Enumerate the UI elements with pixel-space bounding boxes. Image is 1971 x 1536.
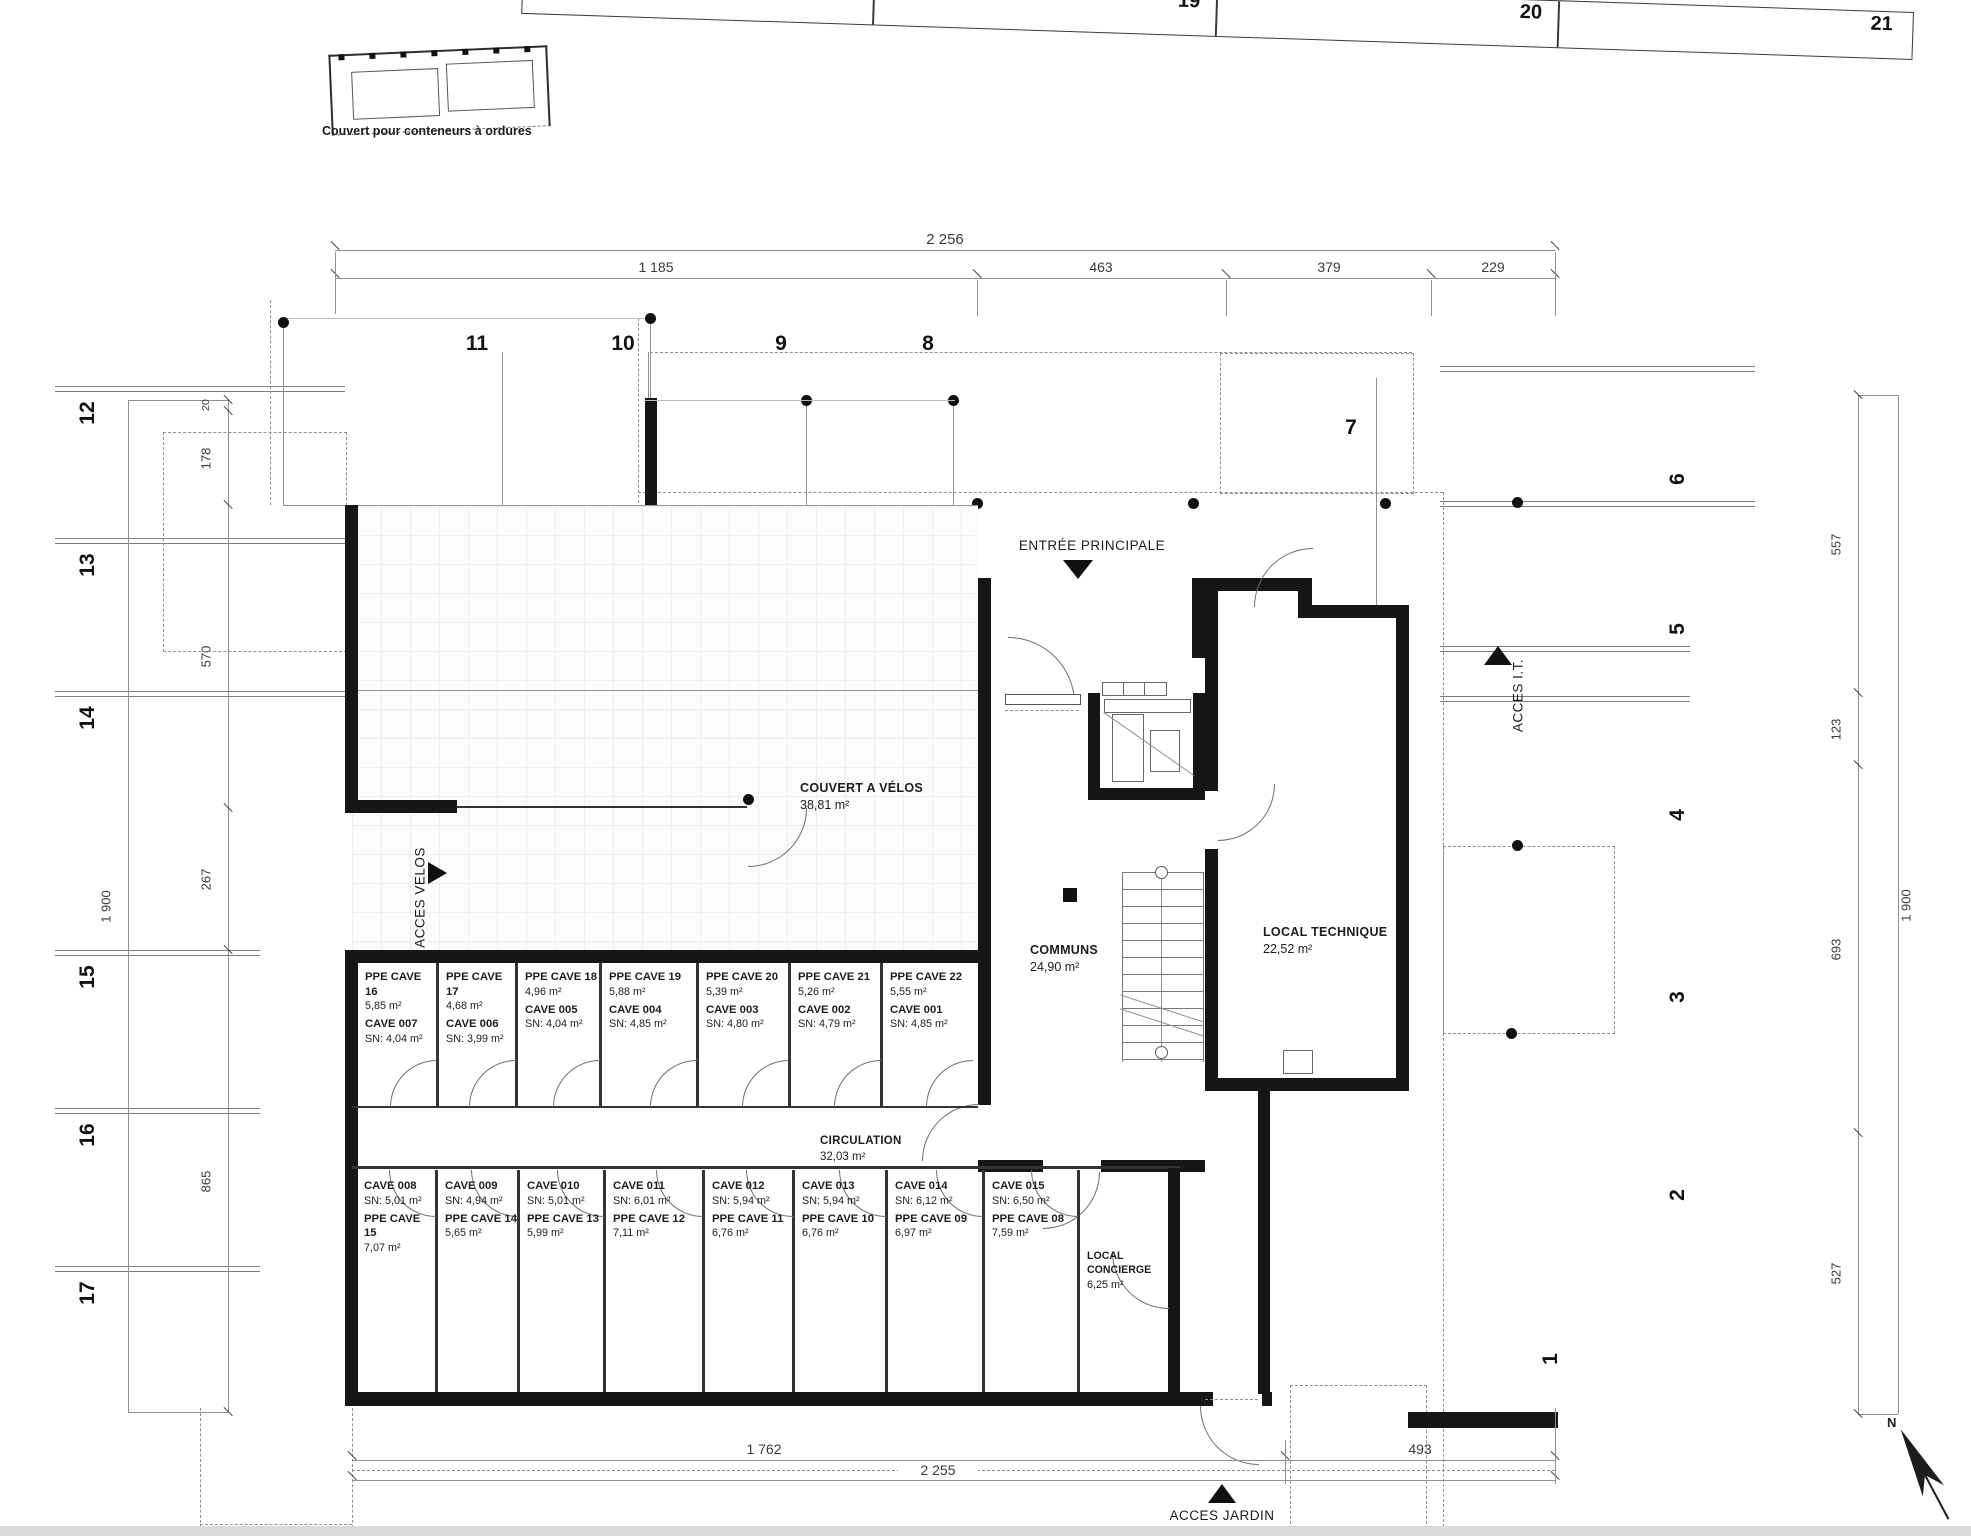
thin-post-line bbox=[283, 322, 284, 505]
cave-cell: CAVE 015 SN: 6,50 m² PPE CAVE 08 7,59 m² bbox=[985, 1172, 1077, 1390]
wall bbox=[1205, 1078, 1409, 1091]
cave-cell: PPE CAVE 16 5,85 m² CAVE 007 SN: 4,04 m² bbox=[358, 963, 436, 1106]
cave-sn: SN: 4,94 m² bbox=[445, 1194, 517, 1208]
cave-ppe-name: PPE CAVE 10 bbox=[802, 1212, 885, 1227]
cave-name: CAVE 004 bbox=[609, 1003, 696, 1018]
dim-right-total: 1 900 bbox=[1899, 881, 1914, 931]
ext-line bbox=[1285, 1440, 1286, 1484]
cave-sn: SN: 6,50 m² bbox=[992, 1194, 1077, 1208]
room-area: 22,52 m² bbox=[1263, 941, 1387, 958]
elevator-machinery bbox=[1112, 714, 1144, 782]
dim-left: 267 bbox=[199, 858, 214, 902]
cave-ppe-name: PPE CAVE 19 bbox=[609, 970, 696, 985]
column bbox=[1063, 888, 1077, 902]
cave-sn: SN: 3,99 m² bbox=[446, 1032, 515, 1046]
grid-label-7: 7 bbox=[1336, 416, 1366, 440]
cave-name: CAVE 009 bbox=[445, 1179, 517, 1194]
wall-stub bbox=[645, 398, 657, 506]
cave-ppe-area: 6,97 m² bbox=[895, 1226, 982, 1240]
elevator-sill bbox=[1102, 682, 1125, 696]
cave-sn: SN: 4,04 m² bbox=[365, 1032, 436, 1046]
entree-label: ENTRÉE PRINCIPALE bbox=[1012, 538, 1172, 553]
access-it-arrow bbox=[1484, 646, 1512, 665]
cave-sn: SN: 5,94 m² bbox=[802, 1194, 885, 1208]
trash-shelter-label: Couvert pour conteneurs à ordures bbox=[322, 124, 562, 138]
site-dashline bbox=[1443, 492, 1444, 1532]
column-dot bbox=[645, 313, 656, 324]
grid-axis-7 bbox=[1376, 378, 1377, 612]
grid-label-2: 2 bbox=[1666, 1180, 1690, 1210]
grid-line bbox=[1440, 646, 1690, 652]
cave-ppe-area: 4,68 m² bbox=[446, 999, 515, 1013]
cave-ppe-name: PPE CAVE 08 bbox=[992, 1212, 1077, 1227]
column-dot bbox=[1512, 497, 1523, 508]
column-dot bbox=[743, 794, 754, 805]
dim-left: 20 bbox=[200, 383, 212, 427]
cave-sn: SN: 4,85 m² bbox=[609, 1017, 696, 1031]
elevator-sill bbox=[1123, 682, 1146, 696]
wall bbox=[1312, 605, 1409, 618]
dim-line bbox=[335, 250, 1555, 251]
dim-left: 865 bbox=[199, 1160, 214, 1204]
cave-ppe-area: 5,99 m² bbox=[527, 1226, 603, 1240]
dim-tick bbox=[1550, 241, 1559, 250]
ext-line bbox=[1555, 252, 1556, 316]
column-dot bbox=[1188, 498, 1199, 509]
dim-right: 123 bbox=[1829, 708, 1844, 752]
thin-wall bbox=[352, 1166, 1180, 1169]
room-label-communs: COMMUNS 24,90 m² bbox=[1030, 942, 1098, 976]
dim-seg: 463 bbox=[1061, 259, 1141, 275]
thin-line bbox=[645, 400, 955, 401]
cave-ppe-name: PPE CAVE 21 bbox=[798, 970, 880, 985]
cave-ppe-area: 5,85 m² bbox=[365, 999, 436, 1013]
door-sill bbox=[1005, 694, 1081, 705]
ext-line bbox=[977, 280, 978, 316]
cave-name: CAVE 014 bbox=[895, 1179, 982, 1194]
door-arc-jardin bbox=[1200, 1406, 1259, 1465]
cave-name: CAVE 008 bbox=[364, 1179, 435, 1194]
dim-bottom-total: 2 255 bbox=[898, 1462, 978, 1478]
cave-ppe-area: 5,65 m² bbox=[445, 1226, 517, 1240]
cave-name: CAVE 011 bbox=[613, 1179, 702, 1194]
grid-label-9: 9 bbox=[766, 332, 796, 356]
dim-chain bbox=[1858, 395, 1859, 1414]
north-arrow: N bbox=[1885, 1415, 1965, 1533]
cave-cell: PPE CAVE 20 5,39 m² CAVE 003 SN: 4,80 m² bbox=[699, 963, 788, 1106]
grid-line-17 bbox=[55, 1266, 260, 1272]
access-velos-label: ACCES VELOS bbox=[413, 843, 428, 953]
grid-line-5 bbox=[1440, 501, 1755, 507]
dim-tick bbox=[1426, 269, 1435, 278]
cave-sn: SN: 5,94 m² bbox=[712, 1194, 792, 1208]
cave-cell: CAVE 014 SN: 6,12 m² PPE CAVE 09 6,97 m² bbox=[888, 1172, 982, 1390]
cave-sn: SN: 6,12 m² bbox=[895, 1194, 982, 1208]
cave-name: CAVE 010 bbox=[527, 1179, 603, 1194]
cave-name: CAVE 001 bbox=[890, 1003, 972, 1018]
thin-line bbox=[283, 505, 353, 506]
cave-ppe-name: PPE CAVE 20 bbox=[706, 970, 788, 985]
elevator-wall bbox=[1193, 693, 1205, 800]
cave-ppe-area: 4,96 m² bbox=[525, 985, 599, 999]
dashed-zone-7 bbox=[1220, 353, 1414, 494]
cave-sn: SN: 4,80 m² bbox=[706, 1017, 788, 1031]
cave-ppe-name: PPE CAVE 17 bbox=[446, 970, 515, 999]
room-area: 32,03 m² bbox=[820, 1150, 902, 1166]
access-jardin-arrow bbox=[1208, 1484, 1236, 1503]
cave-ppe-name: PPE CAVE 16 bbox=[365, 970, 436, 999]
grid-line bbox=[1440, 696, 1690, 702]
concierge-cell: LOCAL CONCIERGE 6,25 m² bbox=[1080, 1172, 1168, 1390]
column-dot bbox=[1506, 1028, 1517, 1039]
cave-ppe-area: 7,07 m² bbox=[364, 1241, 435, 1255]
wall bbox=[345, 950, 991, 963]
grid-label-14: 14 bbox=[76, 703, 100, 733]
cave-ppe-name: PPE CAVE 15 bbox=[364, 1212, 435, 1241]
cave-ppe-area: 5,55 m² bbox=[890, 985, 972, 999]
cave-sn: SN: 6,01 m² bbox=[613, 1194, 702, 1208]
trash-shelter bbox=[328, 45, 550, 135]
band-divider bbox=[872, 0, 876, 25]
cave-cell: CAVE 011 SN: 6,01 m² PPE CAVE 12 7,11 m² bbox=[606, 1172, 702, 1390]
elevator-wall bbox=[1088, 788, 1205, 800]
cave-ppe-name: PPE CAVE 09 bbox=[895, 1212, 982, 1227]
post bbox=[493, 47, 499, 53]
cave-name: CAVE 005 bbox=[525, 1003, 599, 1018]
dim-seg: 379 bbox=[1289, 259, 1369, 275]
elevator-sill bbox=[1144, 682, 1167, 696]
cave-ppe-area: 7,59 m² bbox=[992, 1226, 1077, 1240]
wall-entrance-right bbox=[1192, 578, 1205, 658]
thin-post-line bbox=[650, 318, 651, 400]
post bbox=[431, 50, 437, 56]
dim-connector bbox=[1858, 395, 1898, 396]
bike-shelter-area bbox=[352, 505, 978, 951]
dim-seg: 229 bbox=[1453, 259, 1533, 275]
grid-label-13: 13 bbox=[76, 550, 100, 580]
grid-label-21: 21 bbox=[1870, 13, 1893, 37]
room-name: COMMUNS bbox=[1030, 942, 1098, 959]
floor-plan-basement: 18 19 20 21 Couvert pour conteneurs à or… bbox=[0, 0, 1971, 1536]
grid-label-19: 19 bbox=[1178, 0, 1201, 13]
container-box bbox=[351, 68, 440, 120]
stairs-circle bbox=[1155, 1046, 1168, 1059]
cave-ppe-name: PPE CAVE 11 bbox=[712, 1212, 792, 1227]
sill-dashes bbox=[1005, 710, 1079, 711]
access-jardin-label: ACCES JARDIN bbox=[1152, 1508, 1292, 1523]
room-name: COUVERT A VÉLOS bbox=[800, 780, 923, 797]
post bbox=[524, 46, 530, 52]
site-dashline bbox=[200, 1408, 201, 1528]
cave-sn: SN: 5,01 m² bbox=[364, 1194, 435, 1208]
cave-ppe-area: 5,39 m² bbox=[706, 985, 788, 999]
thin-wall bbox=[457, 806, 747, 808]
ext-line bbox=[1226, 280, 1227, 316]
cave-ppe-area: 5,26 m² bbox=[798, 985, 880, 999]
cave-cell: PPE CAVE 21 5,26 m² CAVE 002 SN: 4,79 m² bbox=[791, 963, 880, 1106]
dim-seg: 1 185 bbox=[616, 259, 696, 275]
grid-label-6: 6 bbox=[1666, 464, 1690, 494]
staircase bbox=[1122, 872, 1204, 1062]
room-area: 38,81 m² bbox=[800, 797, 923, 814]
access-it-label: ACCES I.T. bbox=[1511, 641, 1526, 751]
cave-sn: SN: 5,01 m² bbox=[527, 1194, 603, 1208]
cave-cell: PPE CAVE 18 4,96 m² CAVE 005 SN: 4,04 m² bbox=[518, 963, 599, 1106]
grid-line-14 bbox=[55, 691, 345, 697]
column-dot bbox=[1380, 498, 1391, 509]
grid-label-12: 12 bbox=[76, 398, 100, 428]
cave-name: CAVE 012 bbox=[712, 1179, 792, 1194]
cave-name: CAVE 006 bbox=[446, 1017, 515, 1032]
dim-top-total: 2 256 bbox=[905, 231, 985, 248]
wall-concierge bbox=[1168, 1168, 1180, 1394]
room-label-circulation: CIRCULATION 32,03 m² bbox=[820, 1134, 902, 1165]
wall bbox=[1205, 849, 1218, 1091]
post bbox=[400, 51, 406, 57]
room-name: CIRCULATION bbox=[820, 1134, 902, 1150]
column-dot bbox=[278, 317, 289, 328]
cave-ppe-name: PPE CAVE 13 bbox=[527, 1212, 603, 1227]
dim-right: 693 bbox=[1829, 928, 1844, 972]
room-area: 24,90 m² bbox=[1030, 959, 1098, 976]
site-dashline bbox=[352, 1408, 353, 1528]
room-area: 6,25 m² bbox=[1087, 1278, 1168, 1292]
cave-cell: CAVE 010 SN: 5,01 m² PPE CAVE 13 5,99 m² bbox=[520, 1172, 603, 1390]
dim-tick bbox=[1221, 269, 1230, 278]
cave-name: CAVE 015 bbox=[992, 1179, 1077, 1194]
door-arc bbox=[1218, 784, 1275, 841]
grid-label-18: 18 bbox=[835, 0, 858, 2]
dim-right: 527 bbox=[1829, 1252, 1844, 1296]
cave-ppe-area: 6,76 m² bbox=[712, 1226, 792, 1240]
north-arrow-icon bbox=[1885, 1415, 1965, 1533]
post bbox=[369, 53, 375, 59]
retaining-bar bbox=[1408, 1412, 1558, 1428]
grid-label-8: 8 bbox=[913, 332, 943, 356]
dim-chain bbox=[128, 400, 129, 1412]
cave-name: CAVE 002 bbox=[798, 1003, 880, 1018]
room-label-technique: LOCAL TECHNIQUE 22,52 m² bbox=[1263, 924, 1387, 958]
grid-label-20: 20 bbox=[1519, 1, 1542, 25]
grid-line-6 bbox=[1440, 366, 1755, 372]
cave-ppe-area: 5,88 m² bbox=[609, 985, 696, 999]
room-name: LOCAL CONCIERGE bbox=[1087, 1250, 1168, 1278]
cave-cell: CAVE 009 SN: 4,94 m² PPE CAVE 14 5,65 m² bbox=[438, 1172, 517, 1390]
grid-label-11: 11 bbox=[462, 332, 492, 356]
post bbox=[462, 49, 468, 55]
grid-label-1: 1 bbox=[1539, 1344, 1563, 1374]
wall bbox=[345, 1392, 1213, 1406]
access-velos-arrow bbox=[428, 862, 447, 884]
wall bbox=[1396, 605, 1409, 1091]
cave-name: CAVE 003 bbox=[706, 1003, 788, 1018]
grid-label-5: 5 bbox=[1666, 614, 1690, 644]
grid-line-16 bbox=[55, 1108, 260, 1114]
cave-ppe-name: PPE CAVE 14 bbox=[445, 1212, 517, 1227]
cave-cell: PPE CAVE 17 4,68 m² CAVE 006 SN: 3,99 m² bbox=[439, 963, 515, 1106]
dim-left-total: 1 900 bbox=[99, 882, 114, 932]
stairs-centerline bbox=[1161, 872, 1162, 1062]
grid-label-15: 15 bbox=[76, 962, 100, 992]
cave-sn: SN: 4,79 m² bbox=[798, 1017, 880, 1031]
ext-line bbox=[1431, 280, 1432, 316]
dashed-zone bbox=[1443, 846, 1615, 1034]
wall-hall-left bbox=[978, 578, 991, 1105]
fixture bbox=[1283, 1050, 1313, 1074]
dim-right: 557 bbox=[1829, 523, 1844, 567]
stairs-circle bbox=[1155, 866, 1168, 879]
dim-bottom-right: 493 bbox=[1380, 1441, 1460, 1457]
room-label-velos: COUVERT A VÉLOS 38,81 m² bbox=[800, 780, 923, 814]
elevator-wall bbox=[1088, 693, 1100, 800]
cave-ppe-area: 6,76 m² bbox=[802, 1226, 885, 1240]
wall bbox=[1262, 1392, 1272, 1406]
door-arc bbox=[1254, 548, 1313, 607]
wall bbox=[1205, 591, 1218, 791]
room-name: LOCAL TECHNIQUE bbox=[1263, 924, 1387, 941]
grid-label-4: 4 bbox=[1666, 800, 1690, 830]
wall bbox=[345, 800, 457, 813]
cave-ppe-name: PPE CAVE 22 bbox=[890, 970, 972, 985]
cave-sn: SN: 4,04 m² bbox=[525, 1017, 599, 1031]
grid-label-17: 17 bbox=[76, 1278, 100, 1308]
band-divider bbox=[1215, 0, 1219, 36]
dim-connector bbox=[128, 400, 228, 401]
dim-tick bbox=[972, 269, 981, 278]
grid-label-3: 3 bbox=[1666, 982, 1690, 1012]
cave-name: CAVE 013 bbox=[802, 1179, 885, 1194]
elevator-machinery bbox=[1104, 699, 1191, 713]
site-dashline bbox=[200, 1524, 352, 1525]
sill-dashes bbox=[1205, 1399, 1258, 1400]
ext-line bbox=[335, 252, 336, 314]
wall bbox=[345, 505, 358, 813]
cave-cell: CAVE 008 SN: 5,01 m² PPE CAVE 15 7,07 m² bbox=[357, 1172, 435, 1390]
container-box bbox=[446, 60, 535, 112]
thin-line bbox=[283, 318, 650, 319]
cave-ppe-name: PPE CAVE 12 bbox=[613, 1212, 702, 1227]
dashed-zone-jardin bbox=[1290, 1385, 1427, 1529]
cave-ppe-area: 7,11 m² bbox=[613, 1226, 702, 1240]
post bbox=[338, 54, 344, 60]
dim-bottom-left: 1 762 bbox=[724, 1441, 804, 1457]
ext-line bbox=[1555, 1408, 1556, 1484]
cave-cell: PPE CAVE 19 5,88 m² CAVE 004 SN: 4,85 m² bbox=[602, 963, 696, 1106]
cave-cell: CAVE 013 SN: 5,94 m² PPE CAVE 10 6,76 m² bbox=[795, 1172, 885, 1390]
cave-cell: PPE CAVE 22 5,55 m² CAVE 001 SN: 4,85 m² bbox=[883, 963, 972, 1106]
dim-line bbox=[352, 1480, 1555, 1481]
dim-line bbox=[352, 1460, 1555, 1461]
column-dot bbox=[1512, 840, 1523, 851]
cave-name: CAVE 007 bbox=[365, 1017, 436, 1032]
site-dashline bbox=[638, 318, 639, 508]
door-arc bbox=[922, 1104, 979, 1161]
cave-ppe-name: PPE CAVE 18 bbox=[525, 970, 599, 985]
cave-cell: CAVE 012 SN: 5,94 m² PPE CAVE 11 6,76 m² bbox=[705, 1172, 792, 1390]
entree-arrow bbox=[1063, 560, 1093, 579]
dim-tick bbox=[330, 241, 339, 250]
grid-label-10: 10 bbox=[608, 332, 638, 356]
cave-sn: SN: 4,85 m² bbox=[890, 1017, 972, 1031]
dim-line bbox=[335, 278, 1555, 279]
page-edge bbox=[0, 1526, 1971, 1536]
dashed-zone-left bbox=[163, 432, 347, 652]
north-letter: N bbox=[1887, 1415, 1896, 1430]
dim-connector bbox=[128, 1412, 228, 1413]
band-divider bbox=[1557, 1, 1561, 47]
retaining-wall-band: 18 19 20 21 bbox=[521, 0, 1914, 60]
thin-line bbox=[352, 690, 978, 691]
site-dashline bbox=[270, 300, 271, 505]
grid-label-16: 16 bbox=[76, 1120, 100, 1150]
wall-vestibule bbox=[1258, 1078, 1270, 1394]
elevator-machinery bbox=[1150, 730, 1180, 772]
